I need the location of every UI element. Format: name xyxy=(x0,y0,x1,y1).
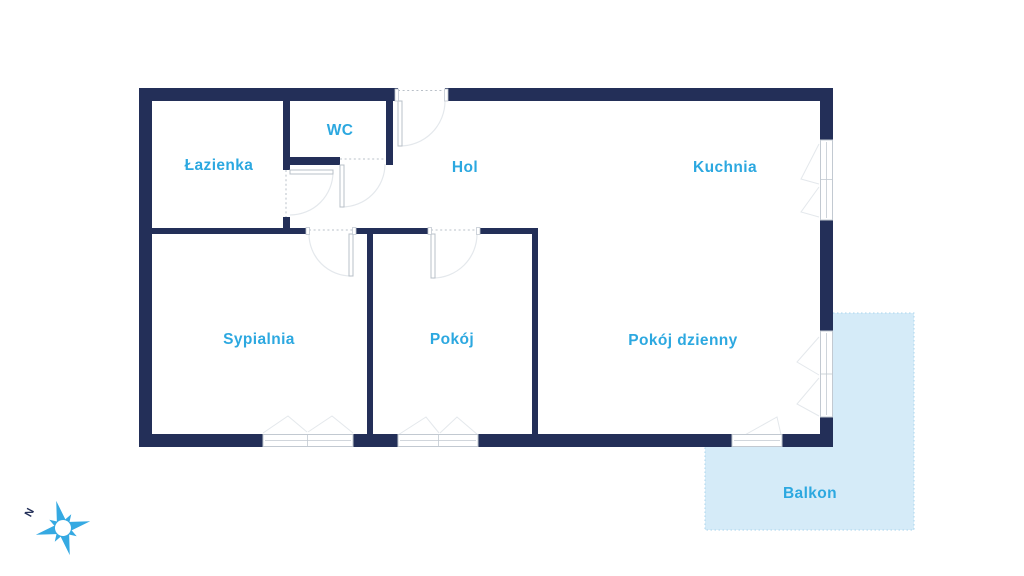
pokoj-door-leaf xyxy=(431,234,435,278)
wall-bottom-2 xyxy=(353,434,398,447)
wall-top-right xyxy=(445,88,833,101)
entrance-door-jamb-left xyxy=(395,89,399,101)
wall-middle-1 xyxy=(152,228,309,234)
room-label-sypialnia: Sypialnia xyxy=(223,331,295,349)
wall-bottom-3 xyxy=(478,434,732,447)
floor-plan-canvas: Łazienka WC Hol Kuchnia Sypialnia Pokój … xyxy=(0,0,1024,576)
pokoj-door-jamb-right xyxy=(477,228,481,235)
sypialnia-door-jamb-right xyxy=(353,228,357,235)
wall-left xyxy=(139,101,152,447)
wall-top-left xyxy=(139,88,398,101)
sypialnia-door-jamb-left xyxy=(306,228,310,235)
wall-wc-bottom xyxy=(283,157,340,165)
sypialnia-door-leaf xyxy=(349,234,353,276)
compass-rose: N xyxy=(14,488,110,572)
entrance-door-jamb-right xyxy=(445,89,449,101)
wall-right-middle xyxy=(820,220,833,331)
wc-door-leaf xyxy=(340,165,344,207)
room-label-wc: WC xyxy=(327,122,354,140)
building-footprint xyxy=(139,88,833,447)
wall-middle-2 xyxy=(353,228,431,234)
wall-bottom-4 xyxy=(782,434,833,447)
room-label-lazienka: Łazienka xyxy=(185,157,254,175)
wall-right-lower xyxy=(820,417,833,434)
floor-plan-drawing xyxy=(0,0,1024,576)
room-label-balkon: Balkon xyxy=(783,485,837,503)
wall-right-upper xyxy=(820,101,833,140)
compass-north-label: N xyxy=(23,506,37,519)
compass-star-icon xyxy=(29,494,97,562)
pokoj-door-jamb-left xyxy=(428,228,432,235)
wall-sypialnia-pokoj xyxy=(367,234,373,434)
wall-middle-3 xyxy=(477,228,538,234)
room-label-pokoj: Pokój xyxy=(430,331,474,349)
wall-bottom-1 xyxy=(139,434,263,447)
room-label-hol: Hol xyxy=(452,159,478,177)
room-label-pokoj-dzienny: Pokój dzienny xyxy=(628,332,737,350)
lazienka-door-leaf xyxy=(290,170,333,174)
wall-wc-right xyxy=(386,101,393,165)
entrance-door-leaf xyxy=(398,101,402,146)
room-label-kuchnia: Kuchnia xyxy=(693,159,757,177)
wall-pokoj-dzienny xyxy=(532,234,538,434)
